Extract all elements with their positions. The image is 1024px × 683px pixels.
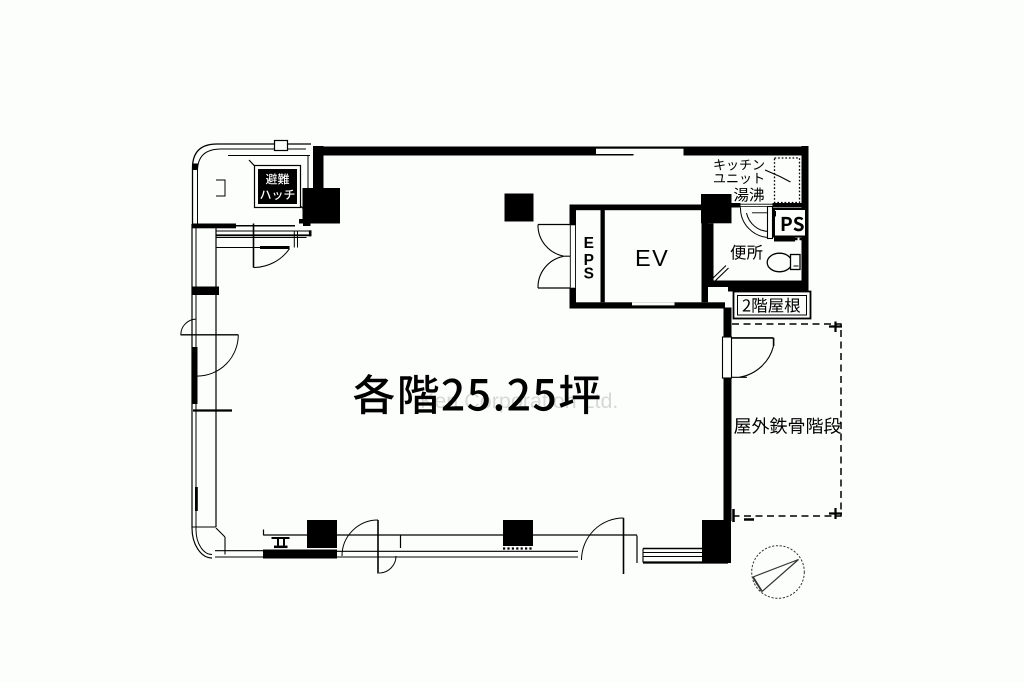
svg-text:EV: EV bbox=[635, 245, 669, 271]
svg-text:E: E bbox=[584, 235, 594, 252]
svg-text:S: S bbox=[584, 266, 594, 283]
